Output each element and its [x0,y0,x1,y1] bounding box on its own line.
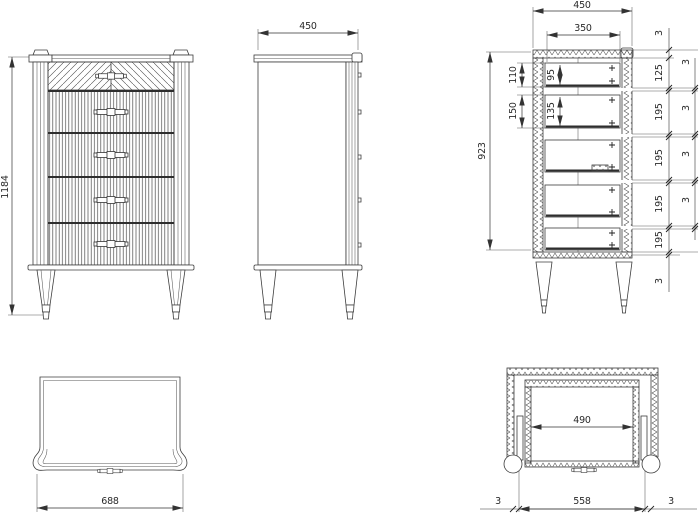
dim-gap-3: 3 [681,197,692,203]
side-front-cap [352,53,362,62]
lock-detail [592,165,608,171]
plan-right-wall [651,375,658,457]
top-view: 688 [33,377,187,512]
side-depth-dimension: 450 [258,21,358,50]
front-right-pilaster [174,62,189,265]
technical-drawing-sheet: 1184 [0,0,700,515]
top-width-dimension: 688 [37,474,183,512]
dim-drawer2-inner: 135 [546,102,557,120]
dim-gap-2: 3 [681,151,692,157]
front-top-drawer [48,62,174,90]
dim-drawer2-box: 150 [508,102,519,120]
drawer4-pull [94,197,128,204]
dim-plan-span: 558 [573,496,591,507]
left-finial [33,50,49,55]
front-view: 1184 [0,50,194,319]
plan-left-leg-post [504,455,522,473]
drawer5-pull [94,241,128,248]
section-bottom-panel [533,252,632,258]
front-stack-dimensions: 3 125 195 195 195 195 3 3 3 3 3 [632,28,698,292]
dim-section-depth: 450 [573,0,591,11]
dim-stack-1: 125 [654,64,665,82]
drawer2-pull [94,109,128,116]
top-outline [33,377,187,470]
dim-drawer1-inner: 95 [546,69,557,81]
dim-stack-6: 3 [654,278,665,284]
side-legs [260,270,358,319]
side-panel [258,62,346,265]
front-top-cornice [29,50,193,62]
dim-stack-3: 195 [654,149,665,167]
dim-stack-5: 195 [654,231,665,249]
front-left-pilaster [33,62,48,265]
plan-bottom-dimensions: 3 558 3 [480,471,697,512]
plan-right-slide [641,416,647,460]
top-view-pull [98,468,122,473]
dim-stack-2: 195 [654,103,665,121]
dim-front-height: 1184 [0,175,11,199]
dim-gap-0: 3 [681,59,692,65]
section-front-cap [621,48,633,58]
section-drawer-boxes [545,63,620,250]
front-fluted-drawers [48,91,174,265]
drawer3-pull [94,152,128,159]
front-legs [37,270,185,319]
dim-plan-right-offset: 3 [668,496,674,507]
top-drawer-pull [96,73,127,79]
drawing-svg: 1184 [0,0,700,515]
plan-section-view: 490 3 558 3 [480,368,697,512]
plan-inner-back [525,380,639,387]
dim-gap-1: 3 [681,105,692,111]
side-view: 450 [254,21,362,319]
dim-top-width: 688 [101,496,119,507]
dim-stack-0: 3 [654,30,665,36]
dim-drawer1-box: 110 [508,66,519,84]
plan-front-rail [525,461,639,467]
section-top-panel [533,50,632,58]
plan-pull [572,467,596,472]
plan-inner-right [633,387,639,463]
section-view: 450 350 923 110 150 95 135 3 1 [477,0,698,313]
section-legs [536,262,632,313]
plan-inner-left [525,387,531,463]
side-pegs [358,73,361,247]
dim-side-depth: 450 [299,21,317,32]
section-front-stack [622,58,632,252]
plan-back-wall [507,368,658,375]
side-bottom-rail [254,265,362,270]
dim-stack-4: 195 [654,195,665,213]
dim-plan-left-offset: 3 [495,496,501,507]
plan-right-leg-post [642,455,660,473]
dim-section-height: 923 [477,142,488,160]
dim-plan-inner-width: 490 [573,415,591,426]
plan-left-wall [507,375,514,457]
right-cap [170,55,193,62]
side-front-post [346,62,361,265]
dim-section-inner-depth: 350 [574,23,592,34]
left-cap [29,55,52,62]
section-height-dimension: 923 [477,52,531,250]
plan-inner-width-dimension: 490 [531,415,633,427]
plan-left-slide [517,416,523,460]
front-bottom-rail [28,265,194,270]
right-finial [173,50,189,55]
